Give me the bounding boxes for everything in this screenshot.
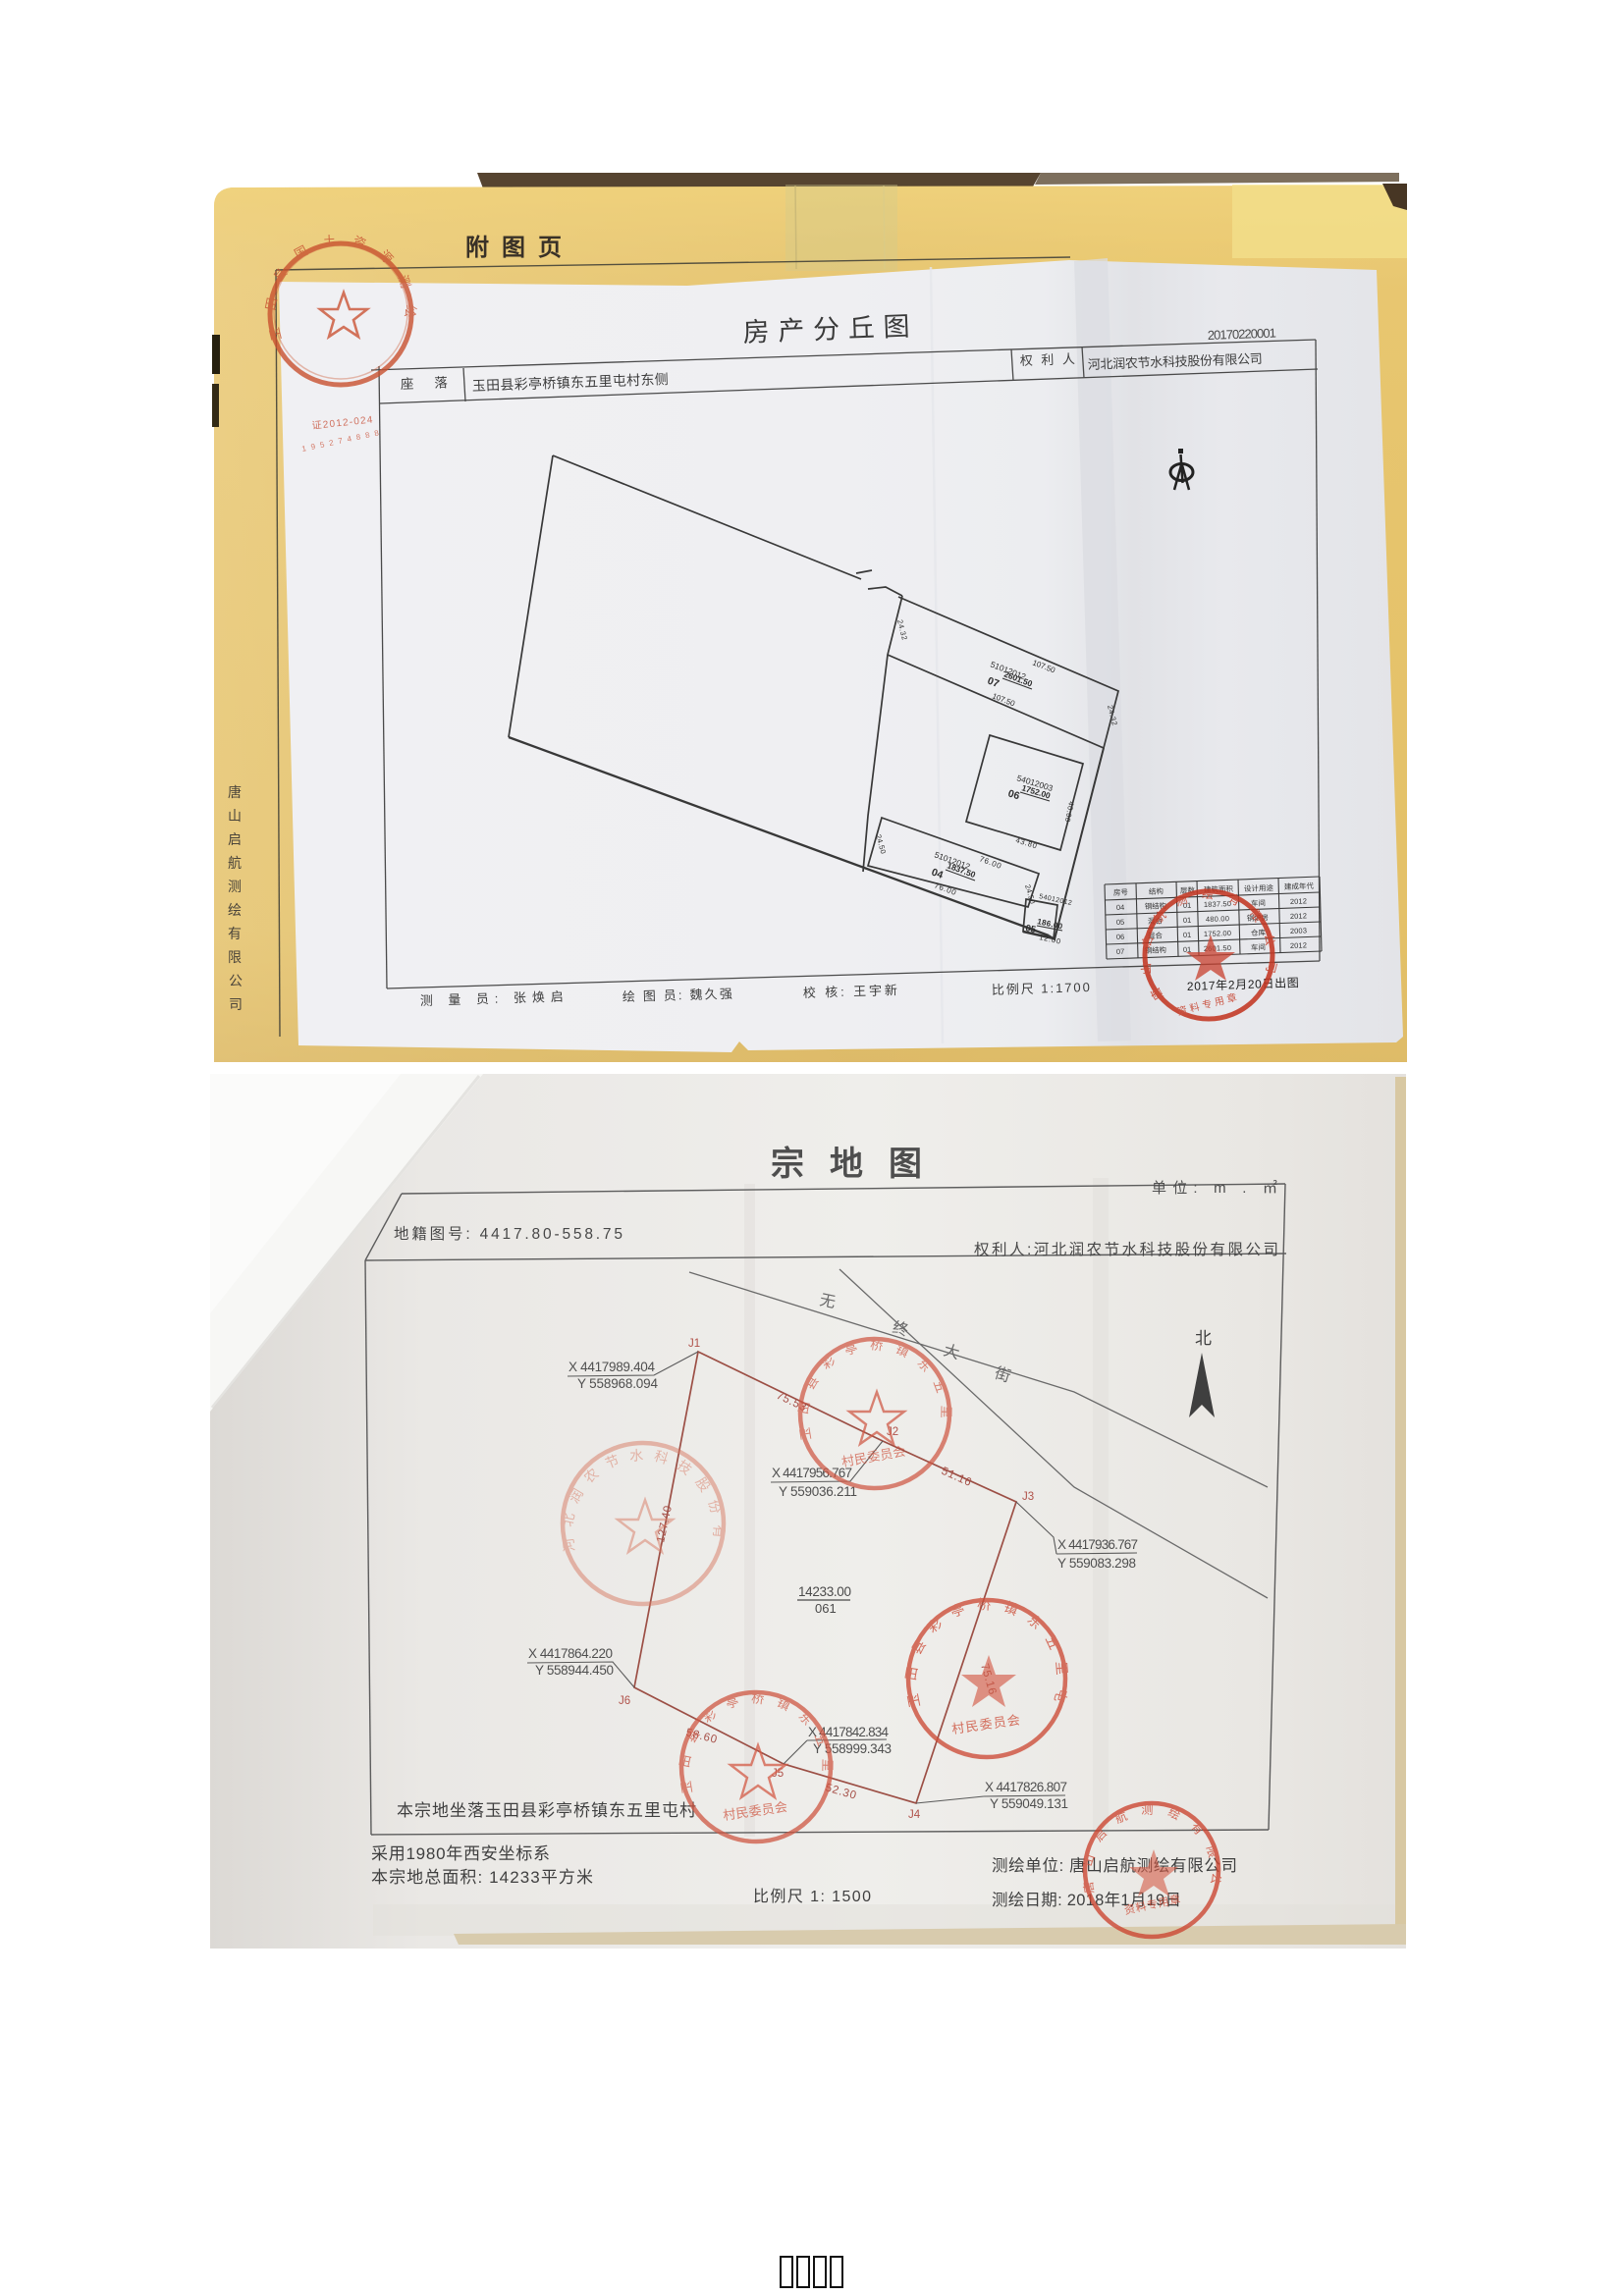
svg-text:2012: 2012	[1290, 940, 1307, 950]
svg-text:绘: 绘	[228, 902, 242, 918]
svg-text:有: 有	[228, 926, 242, 941]
svg-text:04: 04	[1116, 903, 1125, 912]
svg-text:建成年代: 建成年代	[1284, 881, 1315, 891]
svg-text:X 4417864.220: X 4417864.220	[528, 1646, 613, 1661]
svg-text:2012: 2012	[1290, 896, 1307, 906]
svg-text:设计用途: 设计用途	[1244, 882, 1274, 893]
svg-text:公: 公	[229, 973, 243, 988]
svg-text:20170220001: 20170220001	[1208, 326, 1276, 343]
svg-text:J6: J6	[619, 1695, 630, 1707]
svg-text:Y 558944.450: Y 558944.450	[535, 1663, 614, 1678]
svg-text:Y 559083.298: Y 559083.298	[1057, 1556, 1136, 1571]
svg-text:2003: 2003	[1290, 926, 1307, 935]
svg-text:附 图 页: 附 图 页	[465, 234, 562, 261]
svg-text:结构: 结构	[1149, 885, 1164, 896]
svg-text:航: 航	[228, 855, 242, 871]
svg-text:本宗地坐落玉田县彩亭桥镇东五里屯村: 本宗地坐落玉田县彩亭桥镇东五里屯村	[397, 1801, 696, 1820]
svg-text:Y 559036.211: Y 559036.211	[779, 1484, 857, 1499]
svg-text:限: 限	[228, 949, 242, 965]
svg-text:14233.00: 14233.00	[798, 1584, 851, 1599]
svg-text:01: 01	[1183, 916, 1192, 925]
svg-text:采用1980年西安坐标系: 采用1980年西安坐标系	[371, 1844, 550, 1863]
svg-text:山: 山	[228, 808, 242, 824]
svg-text:J1: J1	[688, 1338, 700, 1350]
svg-text:测: 测	[228, 879, 242, 894]
svg-text:启: 启	[228, 831, 242, 847]
svg-text:X 4417989.404: X 4417989.404	[568, 1360, 655, 1374]
svg-text:房号: 房号	[1113, 886, 1128, 897]
svg-text:06: 06	[1116, 933, 1125, 941]
svg-text:测绘单位: 唐山启航测绘有限公司: 测绘单位: 唐山启航测绘有限公司	[992, 1856, 1237, 1875]
svg-text:Y 558968.094: Y 558968.094	[577, 1376, 658, 1391]
svg-text:Y 559049.131: Y 559049.131	[990, 1796, 1068, 1811]
svg-text:05: 05	[1116, 918, 1125, 927]
svg-text:2012: 2012	[1290, 911, 1307, 921]
svg-text:061: 061	[815, 1601, 837, 1616]
svg-text:X 4417826.807: X 4417826.807	[985, 1780, 1067, 1794]
svg-text:权利人: 权利人	[1020, 351, 1075, 368]
svg-text:J4: J4	[908, 1809, 921, 1821]
svg-text:本宗地总面积: 14233平方米: 本宗地总面积: 14233平方米	[371, 1868, 593, 1887]
svg-text:07: 07	[1116, 947, 1125, 956]
svg-text:座 落: 座 落	[401, 375, 449, 392]
svg-text:比例尺 1:1700: 比例尺 1:1700	[992, 980, 1090, 997]
svg-text:1752.00: 1752.00	[1204, 929, 1231, 938]
svg-text:X 4417936.767: X 4417936.767	[1057, 1537, 1138, 1552]
svg-text:司: 司	[229, 996, 243, 1012]
svg-text:01: 01	[1183, 931, 1192, 939]
svg-text:480.00: 480.00	[1206, 914, 1229, 924]
svg-text:唐: 唐	[228, 784, 242, 800]
svg-text:宗 地 图: 宗 地 图	[771, 1145, 922, 1183]
svg-text:北: 北	[1195, 1329, 1212, 1348]
svg-text:权利人:河北润农节水科技股份有限公司: 权利人:河北润农节水科技股份有限公司	[974, 1241, 1278, 1258]
svg-text:J3: J3	[1022, 1491, 1034, 1503]
svg-text:比例尺 1: 1500: 比例尺 1: 1500	[753, 1888, 871, 1905]
